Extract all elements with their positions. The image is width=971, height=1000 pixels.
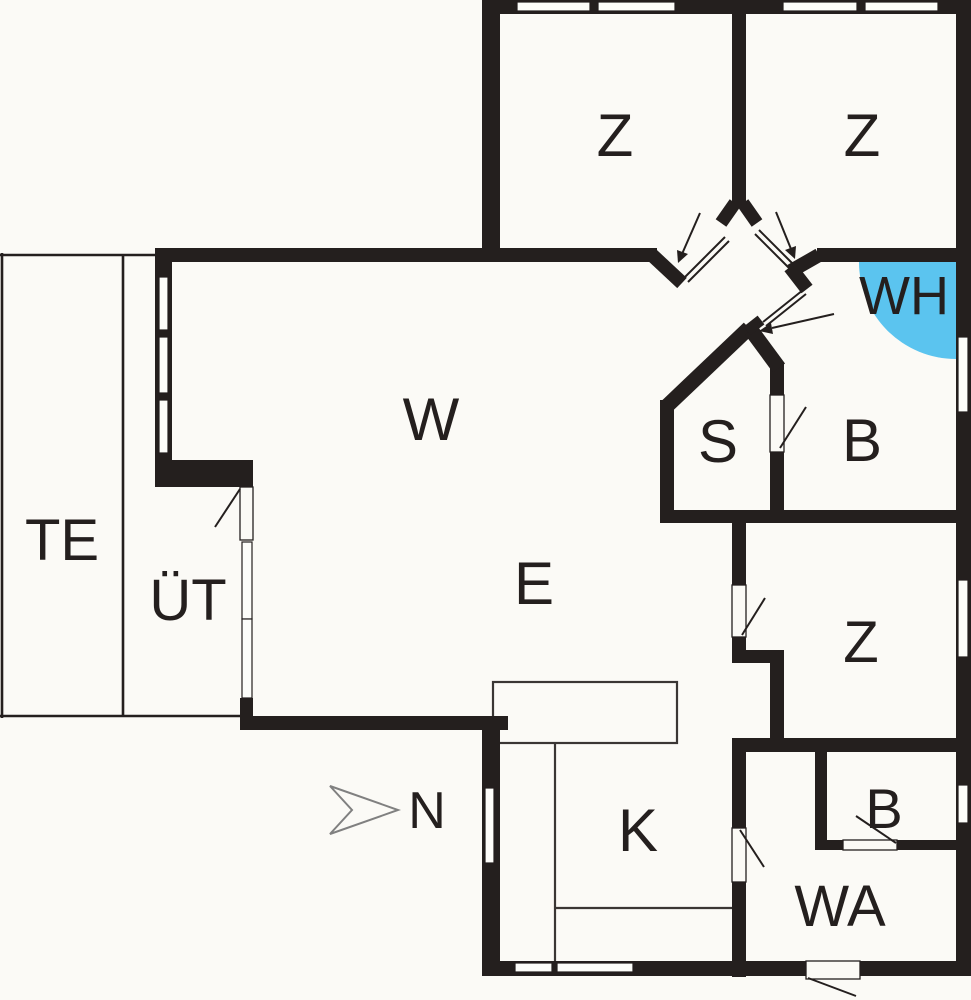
window xyxy=(517,2,590,11)
room-label-bathroom-small: B xyxy=(865,777,902,840)
window xyxy=(159,400,168,453)
room-label-dining: E xyxy=(514,550,554,617)
window xyxy=(865,2,938,11)
window xyxy=(515,963,552,972)
door-leaf xyxy=(759,230,793,264)
door-leaf xyxy=(215,489,240,527)
room-label-whirlpool: WH xyxy=(859,266,949,326)
hall-jamb xyxy=(652,255,682,283)
hall-jamb xyxy=(743,203,757,223)
floor-plan-canvas: Z Z WH W S B TE ÜT E Z K B WA N xyxy=(0,0,971,1000)
room-label-kitchen: K xyxy=(618,797,658,864)
room-label-sauna: S xyxy=(698,408,738,475)
door-opening-bedroom-right xyxy=(732,585,746,637)
door-opening-covered-terrace xyxy=(240,487,253,540)
window xyxy=(242,619,252,698)
door-leaf xyxy=(755,234,789,268)
north-label: N xyxy=(408,782,446,840)
room-label-covered-terrace: ÜT xyxy=(149,568,226,633)
door-leaf xyxy=(684,237,725,278)
window xyxy=(557,963,633,972)
kitchen-counters xyxy=(493,682,732,961)
window xyxy=(159,277,168,330)
hall-jamb xyxy=(721,203,735,223)
room-label-bedroom-top-left: Z xyxy=(597,102,634,169)
door-swing-arrow xyxy=(682,213,700,254)
window xyxy=(958,580,968,657)
sauna-sloped-wall xyxy=(667,328,749,406)
sauna-sloped-wall xyxy=(751,330,779,368)
door-opening-bathroom-small xyxy=(843,840,897,850)
room-label-bedroom-top-right: Z xyxy=(844,102,881,169)
window xyxy=(242,542,252,619)
north-arrow-icon xyxy=(330,786,398,834)
room-label-utility: WA xyxy=(794,874,886,939)
window xyxy=(159,337,168,393)
window xyxy=(485,788,494,863)
door-swing-arrows xyxy=(677,212,834,334)
room-label-terrace: TE xyxy=(25,508,99,573)
door-leaf xyxy=(688,241,729,282)
room-label-bedroom-right: Z xyxy=(843,610,878,675)
door-swing-arrow xyxy=(776,212,791,249)
door-opening-entrance xyxy=(806,961,860,979)
window xyxy=(598,2,675,11)
room-label-bathroom-main: B xyxy=(842,407,882,474)
window xyxy=(958,337,968,412)
door-swing-arrow xyxy=(772,314,834,328)
window xyxy=(958,785,968,823)
room-label-living-room: W xyxy=(403,386,460,453)
floor-plan: Z Z WH W S B TE ÜT E Z K B WA N xyxy=(0,0,971,1000)
door-leaf-entrance xyxy=(808,978,856,996)
door-leaf xyxy=(763,290,803,322)
kitchen-counter-peninsula xyxy=(493,682,677,743)
window xyxy=(783,2,857,11)
